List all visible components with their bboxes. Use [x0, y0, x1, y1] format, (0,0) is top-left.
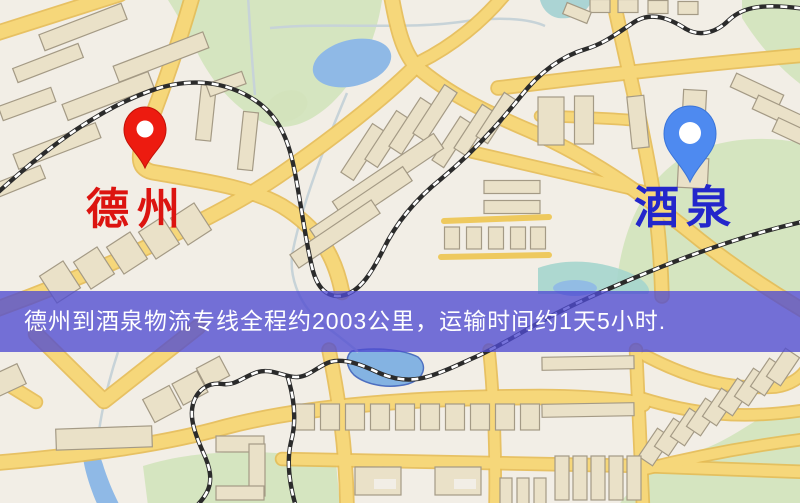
destination-city-label: 酒泉	[634, 171, 738, 236]
route-info-banner: 德州到酒泉物流专线全程约2003公里，运输时间约1天5小时.	[0, 291, 800, 352]
map-viewport[interactable]: 德州 酒泉 德州到酒泉物流专线全程约2003公里，运输时间约1天5小时.	[0, 0, 800, 503]
origin-city-label: 德州	[86, 175, 188, 237]
map-canvas[interactable]	[0, 0, 800, 503]
